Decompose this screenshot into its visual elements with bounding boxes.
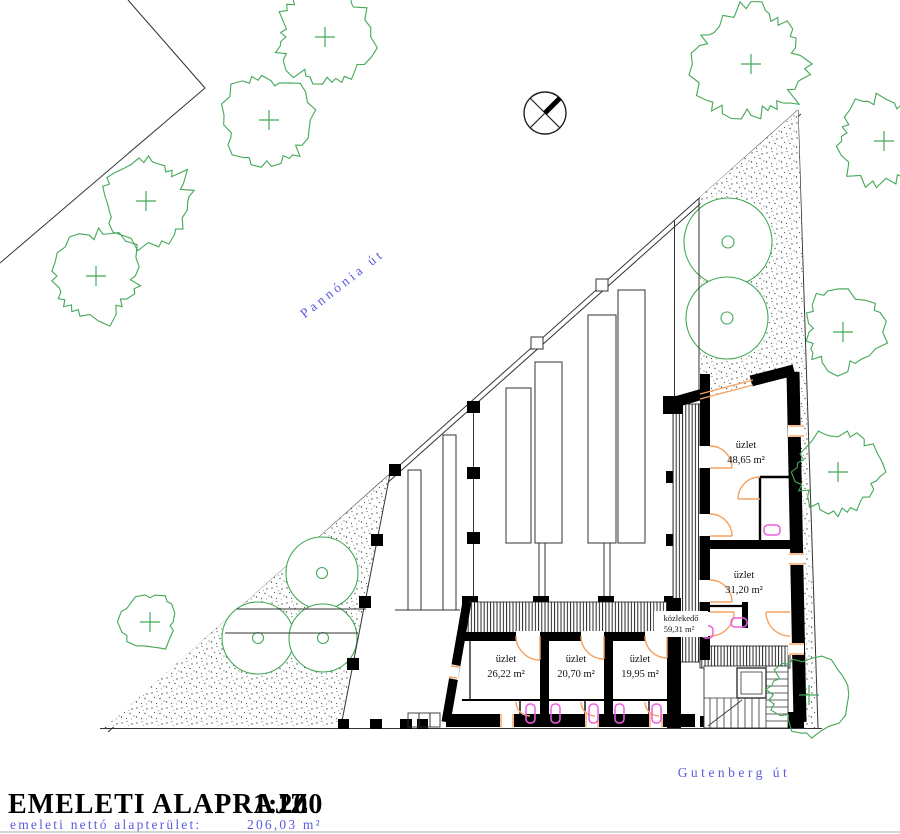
tree-canopy [103,156,195,251]
floor-plan-page: üzlet 48,65 m² üzlet 31,20 m² közlekedő … [0,0,900,834]
tree-center-cross [140,612,160,632]
room-label-shop-b-area: 20,70 m² [557,669,595,680]
room-label-shop-mid-area: 31,20 m² [725,585,763,596]
street-label-gutenberg: Gutenberg út [678,765,791,780]
tree-center-cross [315,27,335,47]
tree-center-cross [828,462,848,482]
street-label-pannonia: Pannónia út [297,246,387,321]
site-plan-svg: üzlet 48,65 m² üzlet 31,20 m² közlekedő … [0,0,900,834]
north-symbol [524,92,566,134]
tree-center-cross [874,131,894,151]
strip-stems [395,404,610,610]
room-label-shop-c-name: üzlet [630,654,650,665]
drawing-subtitle-label: emeleti nettó alapterület: [10,817,201,832]
tree-center-cross [136,191,156,211]
room-label-corridor-name: közlekedő [664,613,699,623]
tree-center-cross [833,322,853,342]
tree-center-cross [259,110,279,130]
room-label-shop-large-name: üzlet [736,440,756,451]
drawing-subtitle-value: 206,03 m² [247,817,322,832]
room-label-shop-mid-name: üzlet [734,570,754,581]
tree-center-cross [741,54,761,74]
roof-strips [408,279,645,610]
room-label-shop-large-area: 48,65 m² [727,455,765,466]
tree-center-cross [86,266,106,286]
staircase [704,666,788,728]
room-label-shop-b-name: üzlet [566,654,586,665]
room-label-shop-c-area: 19,95 m² [621,669,659,680]
room-label-corridor-area: 59,31 m² [664,624,695,634]
room-label-shop-a-area: 26,22 m² [487,669,525,680]
tree-canopy [275,0,377,84]
drawing-scale: 1:200 [253,789,323,820]
title-block: EMELETI ALAPRAJZ 1:200 emeleti nettó ala… [0,789,900,832]
room-label-shop-a-name: üzlet [496,654,516,665]
